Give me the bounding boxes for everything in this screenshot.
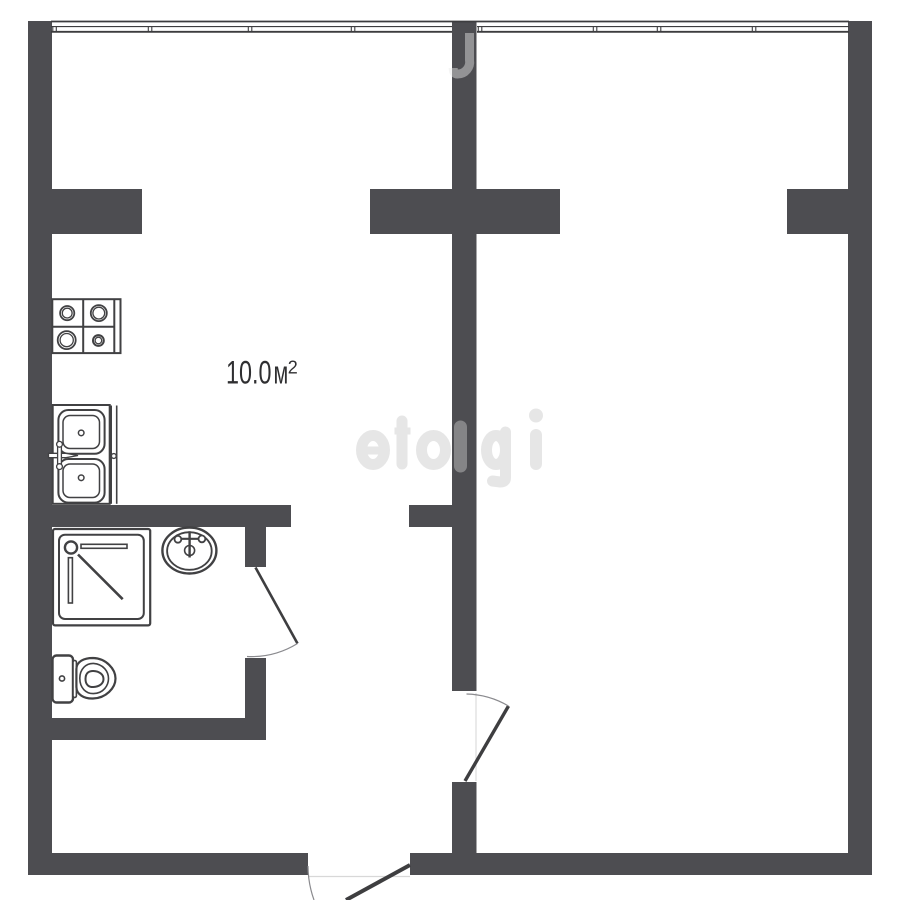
svg-text:м: м (274, 354, 289, 390)
svg-text:2: 2 (288, 358, 298, 378)
svg-text:10.0: 10.0 (226, 355, 271, 390)
